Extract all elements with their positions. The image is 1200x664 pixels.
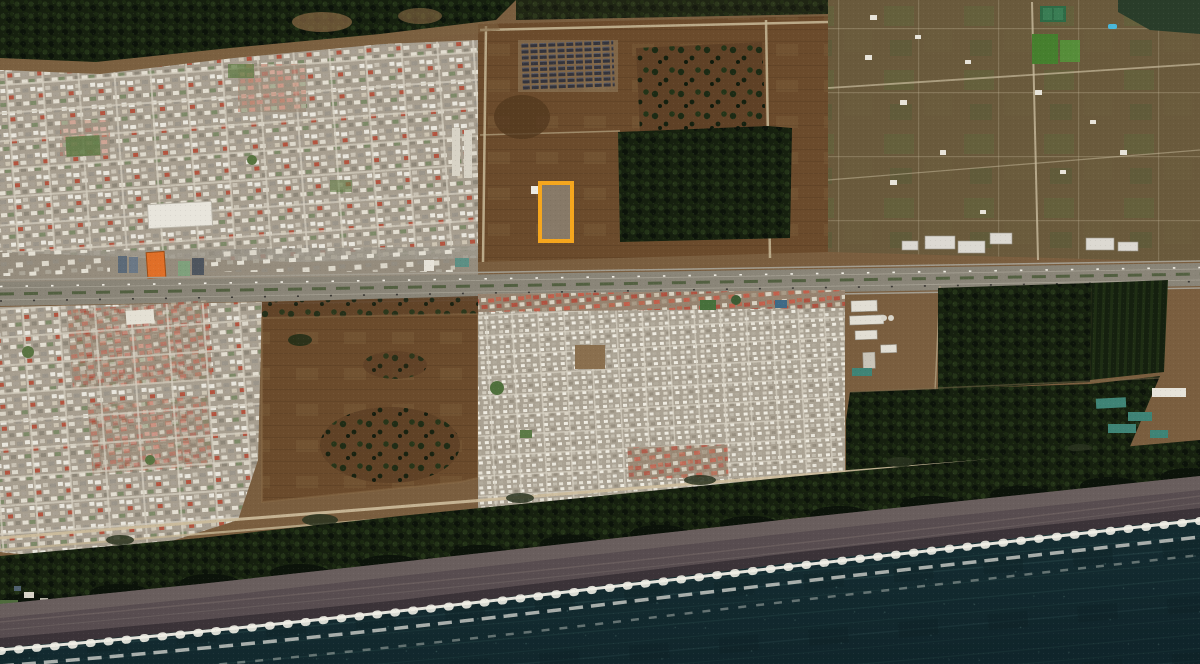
satellite-imagery	[0, 0, 1200, 664]
parcel-highlight-box[interactable]	[538, 181, 574, 243]
satellite-map-view[interactable]	[0, 0, 1200, 664]
image-grain	[0, 0, 1200, 664]
